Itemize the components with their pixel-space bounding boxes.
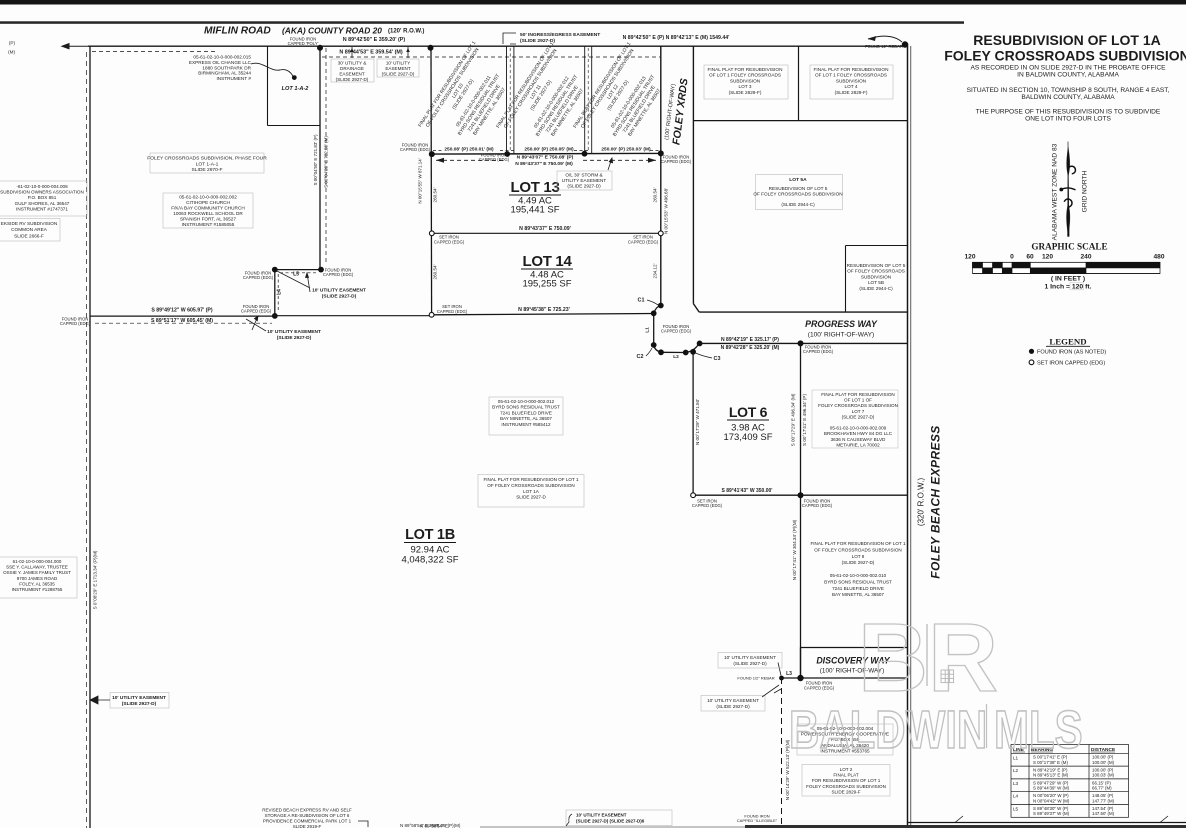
svg-text:BROOKHAVEN HWY 84 DG LLC: BROOKHAVEN HWY 84 DG LLC	[824, 431, 893, 436]
svg-text:REVISED BEACH EXPRESS RV AND S: REVISED BEACH EXPRESS RV AND SELF	[262, 808, 352, 813]
svg-text:(SLIDE 2927-D): (SLIDE 2927-D)	[842, 414, 875, 419]
svg-text:CAPPED (EDG): CAPPED (EDG)	[802, 503, 833, 508]
svg-text:CITIHOPE CHURCH: CITIHOPE CHURCH	[186, 200, 230, 205]
svg-text:05-61-02-10-0-000-002.012: 05-61-02-10-0-000-002.012	[498, 399, 555, 404]
svg-text:L3: L3	[786, 671, 792, 677]
svg-text:SUBDIVISION OWNERS ASSOCIATION: SUBDIVISION OWNERS ASSOCIATION	[0, 190, 84, 195]
svg-text:SLIDE 2919-F: SLIDE 2919-F	[293, 824, 322, 828]
svg-text:SLIDE 2927-D: SLIDE 2927-D	[516, 495, 546, 500]
svg-text:05-61-02-10-0-000-002.010: 05-61-02-10-0-000-002.010	[830, 573, 887, 578]
svg-text:OF FOLEY CROSSROADS: OF FOLEY CROSSROADS	[847, 269, 905, 274]
svg-text:N 00°15'53" W 496.68': N 00°15'53" W 496.68'	[664, 188, 669, 234]
svg-text:LOT 7: LOT 7	[852, 409, 865, 414]
svg-text:1880 SOUTHPARK DR: 1880 SOUTHPARK DR	[202, 65, 251, 70]
svg-text:S 89°49'37" W (M): S 89°49'37" W (M)	[1033, 811, 1070, 816]
svg-text:260.54': 260.54'	[653, 187, 658, 202]
svg-text:N 89°43'37" E 750.09': N 89°43'37" E 750.09'	[519, 226, 571, 232]
svg-text:(SLIDE 2927-D): (SLIDE 2927-D)	[567, 184, 601, 189]
svg-text:SUBDIVISION: SUBDIVISION	[836, 78, 866, 83]
svg-text:(SLIDE 2927-D): (SLIDE 2927-D)	[733, 661, 767, 666]
svg-text:LOT 3: LOT 3	[739, 84, 752, 89]
svg-text:F/K/A BAY COMMUNITY CHURCH: F/K/A BAY COMMUNITY CHURCH	[171, 206, 244, 211]
svg-text:S 0°08'29" E 1713.34' (P)(M): S 0°08'29" E 1713.34' (P)(M)	[93, 550, 98, 609]
svg-text:SET IRON CAPPED (EDG): SET IRON CAPPED (EDG)	[1037, 361, 1105, 367]
svg-text:EKSIDE RV SUBDIVISION: EKSIDE RV SUBDIVISION	[1, 221, 57, 226]
svg-text:OF FOLEY CROSSROADS SUBDIVISIO: OF FOLEY CROSSROADS SUBDIVISION	[487, 483, 574, 488]
svg-text:10' UTILITY EASEMENT: 10' UTILITY EASEMENT	[724, 655, 776, 660]
svg-text:FOUND 12" REBAR: FOUND 12" REBAR	[865, 44, 903, 49]
svg-text:MLS: MLS	[994, 700, 1083, 760]
svg-text:EASEMENT: EASEMENT	[339, 72, 364, 77]
svg-text:120: 120	[1042, 254, 1053, 261]
svg-text:N 89°42'28" E 325.20' (M): N 89°42'28" E 325.20' (M)	[721, 345, 780, 351]
svg-text:C2: C2	[637, 354, 644, 360]
svg-text:L3: L3	[1013, 781, 1019, 786]
svg-text:AS RECORDED IN ON SLIDE 2927-D: AS RECORDED IN ON SLIDE 2927-D IN THE PR…	[970, 65, 1166, 72]
svg-text:10' UTILITY: 10' UTILITY	[386, 61, 410, 66]
svg-text:3636 N CAUSEWAY BLVD: 3636 N CAUSEWAY BLVD	[831, 437, 886, 442]
svg-text:PROGRESS WAY: PROGRESS WAY	[805, 319, 878, 329]
svg-text:INSTRUMENT #: INSTRUMENT #	[216, 76, 251, 81]
svg-text:250.00' (P) 250.03' (M): 250.00' (P) 250.03' (M)	[601, 147, 651, 153]
svg-text:100.00' (M): 100.00' (M)	[1092, 760, 1115, 765]
svg-text:CAPPED (EDG): CAPPED (EDG)	[661, 329, 692, 334]
svg-text:05-61-02-10-0-000-002.015: 05-61-02-10-0-000-002.015	[193, 55, 251, 60]
svg-text:S 00°04'20" E 722.58' (M): S 00°04'20" E 722.58' (M)	[324, 136, 329, 188]
svg-text:LOT 5B: LOT 5B	[868, 280, 884, 285]
svg-text:(SLIDE 2927-D): (SLIDE 2927-D)	[336, 77, 369, 82]
svg-text:N 89°43'37" E 750.09' (M): N 89°43'37" E 750.09' (M)	[515, 161, 573, 167]
svg-text:FINAL PLAT: FINAL PLAT	[833, 773, 858, 778]
svg-text:S 89°41'43" W 350.00': S 89°41'43" W 350.00'	[722, 488, 773, 494]
svg-text:1 Inch = 120 ft.: 1 Inch = 120 ft.	[1044, 284, 1091, 291]
svg-text:FOLEY, AL 36535: FOLEY, AL 36535	[19, 581, 55, 586]
svg-text:N 89°45'13" E (M): N 89°45'13" E (M)	[1033, 773, 1069, 778]
svg-text:CAPPED (EDG): CAPPED (EDG)	[60, 321, 91, 326]
svg-text:(SLIDE 2944-C): (SLIDE 2944-C)	[781, 202, 815, 207]
svg-text:0: 0	[1010, 254, 1014, 261]
svg-text:260.54': 260.54'	[433, 187, 438, 202]
svg-text:195,441 SF: 195,441 SF	[510, 205, 559, 216]
svg-text:O/L 30' STORM &: O/L 30' STORM &	[565, 173, 603, 178]
svg-text:S 00°17'29" E 496.34' (M): S 00°17'29" E 496.34' (M)	[791, 393, 796, 446]
svg-text:B: B	[858, 603, 928, 712]
svg-text:L5: L5	[293, 271, 299, 277]
svg-text:N 00°04'42" W (M): N 00°04'42" W (M)	[1033, 798, 1070, 803]
svg-text:OF FOLEY CROSSROADS SUBDIVISIO: OF FOLEY CROSSROADS SUBDIVISION	[753, 192, 842, 197]
svg-text:SUBDIVISION: SUBDIVISION	[730, 78, 760, 83]
svg-text:P.O. BOX 851: P.O. BOX 851	[28, 195, 57, 200]
svg-text:BAY MINETTE, AL 36507: BAY MINETTE, AL 36507	[832, 592, 884, 597]
svg-text:S 00°17'41" E 496.34' (P): S 00°17'41" E 496.34' (P)	[802, 394, 807, 446]
svg-text:S 00°17'38" E (M): S 00°17'38" E (M)	[1033, 760, 1068, 765]
svg-text:N 00°15'55" W 871.14': N 00°15'55" W 871.14'	[418, 158, 423, 203]
svg-text:LOT 1A: LOT 1A	[523, 489, 540, 494]
svg-text:SITUATED IN SECTION 10, TOWNSH: SITUATED IN SECTION 10, TOWNSHIP 8 SOUTH…	[967, 87, 1170, 94]
svg-text:GULF SHORES, AL 36547: GULF SHORES, AL 36547	[15, 201, 70, 206]
svg-text:CAPPED (EDG): CAPPED (EDG)	[628, 239, 659, 244]
svg-text:BIRMINGHAM, AL 35244: BIRMINGHAM, AL 35244	[198, 71, 251, 76]
svg-text:(SLIDE 2927-D): (SLIDE 2927-D)	[382, 72, 415, 77]
svg-text:10' UTILITY EASEMENT: 10' UTILITY EASEMENT	[576, 813, 627, 818]
svg-text:60: 60	[1026, 254, 1034, 261]
svg-text:S 00°04'50" E 721.83' (P): S 00°04'50" E 721.83' (P)	[313, 134, 318, 185]
svg-text:(100' RIGHT-OF-WAY): (100' RIGHT-OF-WAY)	[808, 332, 874, 339]
svg-text:7241 BLUEFIELD DRIVE: 7241 BLUEFIELD DRIVE	[832, 586, 884, 591]
svg-text:R: R	[928, 603, 998, 712]
svg-text:9700 JAMES ROAD: 9700 JAMES ROAD	[17, 576, 58, 581]
svg-text:LOT 4: LOT 4	[845, 84, 858, 89]
svg-text:CAPPED (EDG): CAPPED (EDG)	[803, 349, 834, 354]
svg-text:FINAL PLAT FOR RESUBDIVISION: FINAL PLAT FOR RESUBDIVISION	[821, 392, 894, 397]
svg-text:N 89°42'50" E (P) N 89°42'13": N 89°42'50" E (P) N 89°42'13" E (M) 1549…	[623, 35, 730, 41]
svg-text:THE PURPOSE OF THIS RESUBDIVIS: THE PURPOSE OF THIS RESUBDIVISION IS TO …	[976, 109, 1161, 116]
svg-text:OF LOT 1 FOLEY CROSSROADS: OF LOT 1 FOLEY CROSSROADS	[815, 73, 887, 78]
svg-text:BAY MINETTE, AL 36507: BAY MINETTE, AL 36507	[500, 416, 552, 421]
svg-text:10' UTILITY EASEMENT: 10' UTILITY EASEMENT	[112, 695, 166, 701]
svg-text:(P): (P)	[9, 41, 16, 46]
svg-text:(320' R.O.W.): (320' R.O.W.)	[917, 478, 926, 527]
svg-text:05-61-02-10-0-000-002.002: 05-61-02-10-0-000-002.002	[179, 195, 237, 200]
svg-text:BALDWIN: BALDWIN	[789, 700, 987, 760]
svg-text:250.00' (P) 250.05' (M): 250.00' (P) 250.05' (M)	[524, 147, 574, 153]
svg-text:195,255 SF: 195,255 SF	[522, 279, 571, 290]
svg-text:FOLEY CROSSROADS SUBDIVISION: FOLEY CROSSROADS SUBDIVISION	[806, 784, 886, 789]
svg-text:N 00°17'41" W 304.34' (P)(M): N 00°17'41" W 304.34' (P)(M)	[792, 519, 797, 580]
svg-text:BYRD SONS RESIDUAL TRUST: BYRD SONS RESIDUAL TRUST	[492, 405, 560, 410]
svg-text:ALABAMA WEST ZONE NAD 83: ALABAMA WEST ZONE NAD 83	[1052, 143, 1059, 240]
svg-text:BALDWIN COUNTY, ALABAMA: BALDWIN COUNTY, ALABAMA	[1021, 94, 1115, 101]
svg-text:SLIDE 2829-F: SLIDE 2829-F	[831, 789, 860, 794]
svg-text:LOT 8: LOT 8	[852, 554, 865, 559]
svg-text:50' INGRESS/EGRESS EASEMENT: 50' INGRESS/EGRESS EASEMENT	[520, 32, 600, 38]
svg-text:FINAL PLAT FOR RESUBDIVISION O: FINAL PLAT FOR RESUBDIVISION OF LOT 1	[810, 541, 905, 546]
svg-text:CAPPED (EDG): CAPPED (EDG)	[661, 159, 692, 164]
svg-text:C3: C3	[714, 356, 721, 362]
svg-text:PROVIDENCE COMMERCIAL PARK LOT: PROVIDENCE COMMERCIAL PARK LOT 1	[263, 819, 352, 824]
svg-text:260.54': 260.54'	[433, 264, 438, 279]
svg-text:OF FOLEY CROSSROADS SUBDIVISIO: OF FOLEY CROSSROADS SUBDIVISION	[814, 547, 901, 552]
svg-text:CAPPED (EDG): CAPPED (EDG)	[243, 275, 274, 280]
svg-text:STORAGE A RE-SUBDIVISION OF LO: STORAGE A RE-SUBDIVISION OF LOT 6	[265, 813, 350, 818]
svg-text:(SLIDE 2944-C): (SLIDE 2944-C)	[859, 286, 893, 291]
svg-text:240: 240	[1080, 254, 1091, 261]
svg-text:N 89°43'07" E 750.08' (P): N 89°43'07" E 750.08' (P)	[517, 155, 574, 161]
svg-text:EXPRESS OIL CHANGE LLC: EXPRESS OIL CHANGE LLC	[189, 60, 252, 65]
svg-text:L4: L4	[1013, 794, 1019, 799]
svg-text:(SLIDE 2927-D): (SLIDE 2927-D)	[842, 560, 875, 565]
svg-text:L1: L1	[645, 327, 651, 333]
svg-text:ONE LOT INTO FOUR LOTS: ONE LOT INTO FOUR LOTS	[1025, 116, 1111, 123]
svg-text:BYRD SONS RESIDUAL TRUST: BYRD SONS RESIDUAL TRUST	[824, 579, 892, 584]
svg-text:LEGEND: LEGEND	[1049, 337, 1086, 347]
svg-text:FOUND IRON (AS NOTED): FOUND IRON (AS NOTED)	[1037, 350, 1106, 356]
svg-text:147.50' (M): 147.50' (M)	[1092, 811, 1115, 816]
svg-text:7241 BLUEFIELD DRIVE: 7241 BLUEFIELD DRIVE	[500, 410, 552, 415]
svg-text:SSE Y. CALLAWAY, TRUSTEE: SSE Y. CALLAWAY, TRUSTEE	[6, 565, 68, 570]
svg-text:173,409 SF: 173,409 SF	[723, 432, 772, 443]
svg-text:LOT 2: LOT 2	[840, 767, 853, 772]
svg-text:INSTRUMENT #1585055: INSTRUMENT #1585055	[182, 222, 235, 227]
svg-text:66.77' (M): 66.77' (M)	[1092, 786, 1112, 791]
svg-text:(SLIDE 2927-D): (SLIDE 2927-D)	[322, 294, 357, 300]
svg-text:LOT 5A: LOT 5A	[789, 177, 807, 183]
svg-text:CAPPED (EDG): CAPPED (EDG)	[804, 685, 835, 690]
svg-text:FOLEY CROSSROADS SUBDIVISION,: FOLEY CROSSROADS SUBDIVISION, PHASE FOUR	[147, 156, 267, 162]
svg-text:FOR RESUBDIVISION OF LOT 1: FOR RESUBDIVISION OF LOT 1	[812, 778, 881, 783]
svg-text:OF LOT 1 FOLEY CROSSROADS: OF LOT 1 FOLEY CROSSROADS	[709, 73, 781, 78]
svg-text:(SLIDE 2829-F): (SLIDE 2829-F)	[729, 90, 762, 95]
svg-text:N 89°42'19" E 325.17' (P): N 89°42'19" E 325.17' (P)	[721, 337, 779, 343]
svg-text:MIFLIN ROAD: MIFLIN ROAD	[204, 26, 271, 37]
svg-text:EASEMENT: EASEMENT	[385, 66, 410, 71]
svg-text:10' UTILITY EASEMENT: 10' UTILITY EASEMENT	[312, 288, 366, 294]
svg-text:N 89°58'54" E: N 89°58'54" E	[420, 824, 448, 828]
svg-text:(SLIDE 2927-D): (SLIDE 2927-D)	[122, 701, 157, 707]
svg-text:FOLEY CROSSROADS SUBDIVISION: FOLEY CROSSROADS SUBDIVISION	[818, 403, 898, 408]
svg-text:10' UTILITY EASEMENT: 10' UTILITY EASEMENT	[707, 698, 759, 703]
svg-text:RESUBDIVISION OF LOT 1A: RESUBDIVISION OF LOT 1A	[973, 32, 1160, 48]
svg-text:CAPPED (EDG): CAPPED (EDG)	[241, 309, 272, 314]
svg-text:CAPPED (EDG): CAPPED (EDG)	[323, 272, 354, 277]
svg-text:100.03' (M): 100.03' (M)	[1092, 773, 1115, 778]
svg-text:-61-02-10-0-000-004.008: -61-02-10-0-000-004.008	[16, 184, 68, 189]
svg-text:C1: C1	[638, 298, 645, 304]
svg-text:FINAL PLAT FOR RESUBDIVISION: FINAL PLAT FOR RESUBDIVISION	[708, 67, 783, 72]
svg-text:IN BALDWIN COUNTY, ALABAMA: IN BALDWIN COUNTY, ALABAMA	[1017, 72, 1119, 79]
svg-text:FOUND 1/2" REBAR: FOUND 1/2" REBAR	[737, 676, 774, 681]
svg-text:( IN FEET ): ( IN FEET )	[1051, 276, 1085, 283]
svg-text:N 89°45'38" E 725.23': N 89°45'38" E 725.23'	[518, 307, 570, 313]
svg-text:S 89°49'12" W 605.97' (P): S 89°49'12" W 605.97' (P)	[151, 308, 212, 314]
svg-text:OSSIE Y. JAMES FAMILY TRUST: OSSIE Y. JAMES FAMILY TRUST	[3, 570, 71, 575]
svg-text:30' UTILITY &: 30' UTILITY &	[338, 61, 367, 66]
svg-text:LOT 6: LOT 6	[729, 404, 768, 420]
svg-text:COMMON AREA: COMMON AREA	[11, 227, 48, 232]
svg-text:FOLEY CROSSROADS SUBDIVISION: FOLEY CROSSROADS SUBDIVISION	[944, 48, 1186, 64]
svg-text:SLIDE 2970-F: SLIDE 2970-F	[192, 167, 223, 173]
svg-text:INSTRUMENT #1747371: INSTRUMENT #1747371	[16, 206, 68, 211]
svg-text:CAPPED (EDG): CAPPED (EDG)	[692, 503, 723, 508]
svg-text:UTILITY EASEMENT: UTILITY EASEMENT	[562, 178, 607, 183]
svg-text:CAPPED (EDG): CAPPED (EDG)	[479, 157, 510, 162]
svg-text:S 89°51'17" W 605.45' (M): S 89°51'17" W 605.45' (M)	[151, 318, 213, 324]
svg-text:234.12': 234.12'	[653, 263, 658, 278]
svg-text:INSTRUMENT #585412: INSTRUMENT #585412	[501, 422, 551, 427]
svg-text:4,048,322 SF: 4,048,322 SF	[401, 555, 458, 566]
svg-text:10' UTILITY EASEMENT: 10' UTILITY EASEMENT	[267, 329, 321, 335]
svg-text:LOT 13: LOT 13	[510, 179, 559, 196]
svg-text:FINAL PLAT FOR RESUBDIVISION: FINAL PLAT FOR RESUBDIVISION	[814, 67, 889, 72]
svg-text:N 89°44'53" E 359.54' (M): N 89°44'53" E 359.54' (M)	[339, 50, 403, 56]
svg-text:N 00°17'29" W 471.50': N 00°17'29" W 471.50'	[695, 399, 700, 445]
svg-text:S 89°44'39" W (M): S 89°44'39" W (M)	[1033, 786, 1070, 791]
svg-text:OF LOT 1 OF: OF LOT 1 OF	[844, 398, 872, 403]
svg-text:SLIDE 2666-F: SLIDE 2666-F	[14, 233, 44, 238]
svg-text:(120' R.O.W.): (120' R.O.W.)	[388, 29, 424, 35]
svg-text:(AKA) COUNTY ROAD 20: (AKA) COUNTY ROAD 20	[282, 26, 382, 36]
svg-text:DRAINAGE: DRAINAGE	[340, 66, 364, 71]
svg-text:61-02-10-0-000-004.000: 61-02-10-0-000-004.000	[13, 559, 62, 564]
svg-text:METAIRIE, LA 70002: METAIRIE, LA 70002	[836, 442, 880, 447]
svg-text:05-61-02-10-0-000-002.009: 05-61-02-10-0-000-002.009	[830, 426, 887, 431]
svg-text:RESUBDIVISION OF LOT 5: RESUBDIVISION OF LOT 5	[847, 263, 906, 268]
svg-text:CAPPED 'POLY': CAPPED 'POLY'	[288, 41, 319, 46]
svg-text:(SLIDE 2927-D) (SLIDE 2927-D: (SLIDE 2927-D) (SLIDE 2927-D)6	[576, 819, 645, 824]
svg-text:147.77' (M): 147.77' (M)	[1092, 798, 1115, 803]
svg-text:(SLIDE 2927-D): (SLIDE 2927-D)	[716, 704, 750, 709]
svg-text:LOT 1-A-2: LOT 1-A-2	[282, 86, 310, 92]
svg-text:FOLEY BEACH EXPRESS: FOLEY BEACH EXPRESS	[929, 425, 943, 578]
svg-text:CAPPED (EDG): CAPPED (EDG)	[434, 239, 465, 244]
svg-text:N 89°42'50" E 359.20' (P): N 89°42'50" E 359.20' (P)	[343, 37, 406, 43]
svg-text:(SLIDE 2829-F): (SLIDE 2829-F)	[835, 90, 868, 95]
svg-text:SUBDIVISION: SUBDIVISION	[861, 274, 891, 279]
svg-text:CAPPED (EDG): CAPPED (EDG)	[400, 147, 431, 152]
svg-text:SPANISH FORT, AL 36527: SPANISH FORT, AL 36527	[180, 217, 236, 222]
svg-text:FINAL PLAT FOR RESUBDIVISION O: FINAL PLAT FOR RESUBDIVISION OF LOT 1	[483, 477, 578, 482]
svg-text:GRAPHIC SCALE: GRAPHIC SCALE	[1031, 242, 1107, 252]
svg-text:120: 120	[964, 254, 975, 261]
svg-text:LOT 1B: LOT 1B	[405, 527, 455, 543]
svg-text:INSTRUMENT #1288755: INSTRUMENT #1288755	[12, 587, 63, 592]
svg-text:L2: L2	[673, 354, 679, 360]
svg-text:GRID NORTH: GRID NORTH	[1082, 170, 1089, 212]
svg-text:480: 480	[1153, 254, 1164, 261]
svg-text:CAPPED "ILLEGIBLE": CAPPED "ILLEGIBLE"	[737, 818, 778, 823]
svg-text:LOT 14: LOT 14	[522, 253, 572, 270]
svg-text:L2: L2	[1013, 768, 1019, 773]
svg-text:RESUBDIVISION OF LOT 5: RESUBDIVISION OF LOT 5	[769, 186, 828, 191]
svg-text:L4: L4	[277, 289, 283, 295]
svg-text:LOT 1-A-1: LOT 1-A-1	[196, 161, 219, 167]
svg-text:CAPPED (EDG): CAPPED (EDG)	[437, 309, 468, 314]
svg-text:L5: L5	[1013, 807, 1019, 812]
svg-text:(M): (M)	[8, 50, 15, 55]
svg-text:10063 ROCKWELL SCHOOL DR: 10063 ROCKWELL SCHOOL DR	[173, 211, 243, 216]
svg-text:(SLIDE 2927-D): (SLIDE 2927-D)	[277, 335, 312, 341]
